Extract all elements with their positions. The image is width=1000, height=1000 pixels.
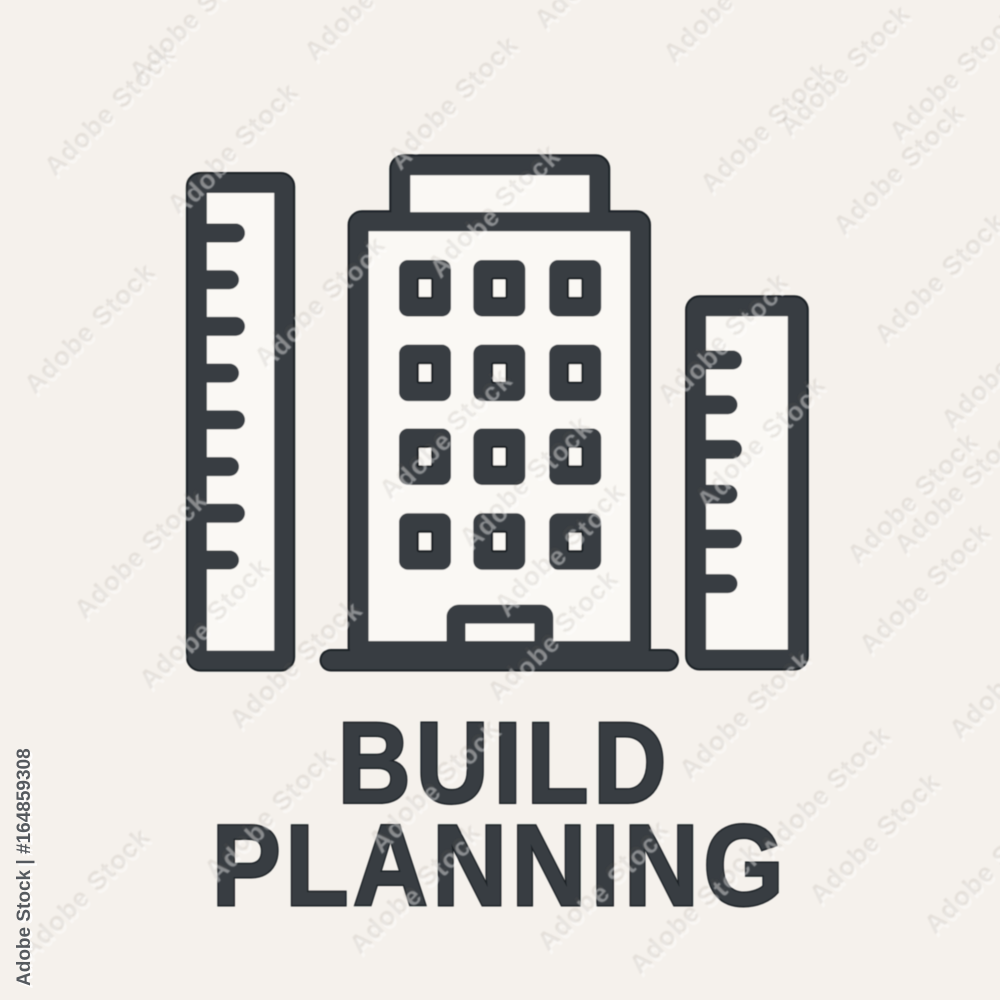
svg-text:Adobe Stock | #164859308: Adobe Stock | #164859308 — [14, 748, 35, 986]
